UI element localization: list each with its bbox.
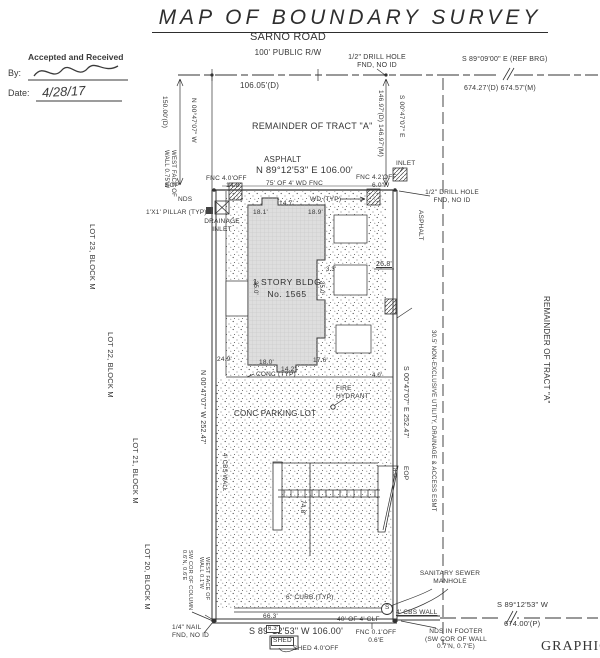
lot-20-label: LOT 20, BLOCK M [142,544,151,610]
stamp-date-value: 4/28/17 [41,83,85,100]
bearing-north-label: N 89°12'53" E 106.00' [256,165,353,176]
dim-8-0-label: 8.0' [390,468,397,478]
dim-18-0-label: 18.0' [259,359,274,367]
dim-14-8-label: 14.8' [226,182,241,190]
bearing-west-top-label: N 00°47'07" W [189,98,197,143]
conc-typ-label: CONC (TYP) [256,371,296,379]
ref-bearing-label: S 89°09'00" E (REF BRG) [462,56,548,64]
dim-24-9-label: 24.9' [217,356,232,364]
dim-14-7-label: 14.7' [279,200,294,208]
drainage-inlet-left-label: DRAINAGE INLET [204,218,240,233]
dim-18-9-label: 18.9' [308,209,323,217]
asphalt-top-label: ASPHALT [264,155,301,164]
nail-found-label: 1/4" NAIL FND, NO ID [172,624,209,639]
shed-label: SHED [271,637,294,646]
title-underline [152,32,548,33]
west-face-wall-bottom-label: WEST FACE OF WALL 0.1'W [197,557,210,600]
stamp-by-label: By: [8,68,21,78]
sanitary-manhole-label: SANITARY SEWER MANHOLE [414,570,486,585]
bearing-east-label: S 00°47'07" E 252.47' [401,366,409,438]
dim-66-3-label: 66.3' [263,613,278,621]
cbs-wall-west-label: 4' CBS WALL [220,453,227,491]
drill-hole-right-label: 1/2" DRILL HOLE FND, NO ID [423,189,481,204]
drill-hole-top-label: 1/2" DRILL HOLE FND, NO ID [345,54,409,71]
column-offset-label: SW COR OF COLUMN 0.6'N, 0.6'E [180,550,193,610]
dim-18-1-label: 18.1' [253,209,268,217]
fire-hydrant-label: FIRE HYDRANT [336,385,369,400]
dim-6-0w-label: 6.0'W [372,182,389,190]
nds-footer-label: NDS IN FOOTER (SW COR OF WALL 0.7'N, 0.7… [416,628,496,651]
road-name-label: SARNO ROAD [228,31,348,44]
road-right-of-way-label: 100' PUBLIC R/W [228,48,348,57]
dim-106-05-label: 106.05'(D) [240,81,279,90]
cbs-wall-bottom-label: 4' CBS WALL [396,609,438,617]
received-stamp: Accepted and Received By: Date:4/28/17 [8,52,148,99]
pillar-symbol [206,207,213,214]
lot-21-label: LOT 21, BLOCK M [130,438,139,504]
manhole-s-label: S [385,604,390,612]
fnc-4-2-off-label: FNC 4.2'OFF [356,174,397,182]
clf-40-label: 40' OF 4' CLF [337,616,380,624]
dim-74-8-label: 74.8' [298,500,306,515]
lot-22-label: LOT 22, BLOCK M [105,332,114,398]
lot-23-label: LOT 23, BLOCK M [87,224,96,290]
building-label-line1: 1 STORY BLDG [249,277,325,287]
conc-parking-lot-label: CONC PARKING LOT [234,409,316,418]
bearing-se-label: S 89°12'53" W [497,601,548,610]
dim-146-97-label: 146.97'(D) 146.97'(M) [376,90,384,157]
dim-674-00-label: 674.00'(P) [504,620,540,629]
dim-4-0-label: 4.0' [372,373,382,380]
wd-typ-label: WD (TYP) [310,196,341,204]
dim-35-0-right-label: 35.0' [317,281,324,295]
page-title: MAP OF BOUNDARY SURVEY [150,6,550,30]
bearing-west-label: N 00°47'07" W 252.47' [198,370,206,444]
remainder-tract-a-right-label: REMAINDER OF TRACT "A" [542,296,551,404]
bearing-south-label: S 89°12'53" W 106.00' [249,626,343,637]
stamp-date-label: Date: [8,88,30,98]
easement-label: 30.5' NON-EXCLUSIVE UTILITY, DRAINAGE & … [429,330,436,512]
dim-26-8-label: 26.8' [376,261,392,269]
fnc-bottom-label: FNC 0.1'OFF 0.6'E [355,629,397,644]
shed-off-label: SHED 4.0'OFF [293,645,339,653]
pillar-label: 1'X1' PILLAR (TYP) [146,209,207,217]
building-label-line2: No. 1565 [249,289,325,299]
west-face-wall-top-label: WEST FACE OF WALL 0.75'W [162,150,176,197]
boundary-survey-page: MAP OF BOUNDARY SURVEY Accepted and Rece… [0,0,600,658]
dim-3-3-label: 3.3' [326,267,336,274]
curb-6in-label: 6" CURB (TYP) [286,594,334,602]
dim-17-6-label: 17.6' [313,357,328,365]
stamp-header: Accepted and Received [28,52,148,62]
asphalt-right-label: ASPHALT [416,210,424,241]
nds-top-label: NDS [178,196,192,204]
inlet-top-label: INLET [396,160,415,168]
graphic-corner-label: GRAPHIC [541,639,600,656]
dim-150-00-label: 150.00'(D) [160,96,168,128]
fence-75-label: 75' OF 4' WD FNC [266,180,323,188]
remainder-tract-a-label: REMAINDER OF TRACT "A" [252,121,372,132]
dim-6-3-label: 6.3' [266,625,280,633]
dim-35-0-left-label: 35.0' [251,281,258,295]
eop-right-label: EOP [401,466,409,480]
dim-674-27-label: 674.27'(D) 674.57'(M) [464,85,536,93]
bearing-east-top-label: S 00°47'07" E [397,95,405,138]
